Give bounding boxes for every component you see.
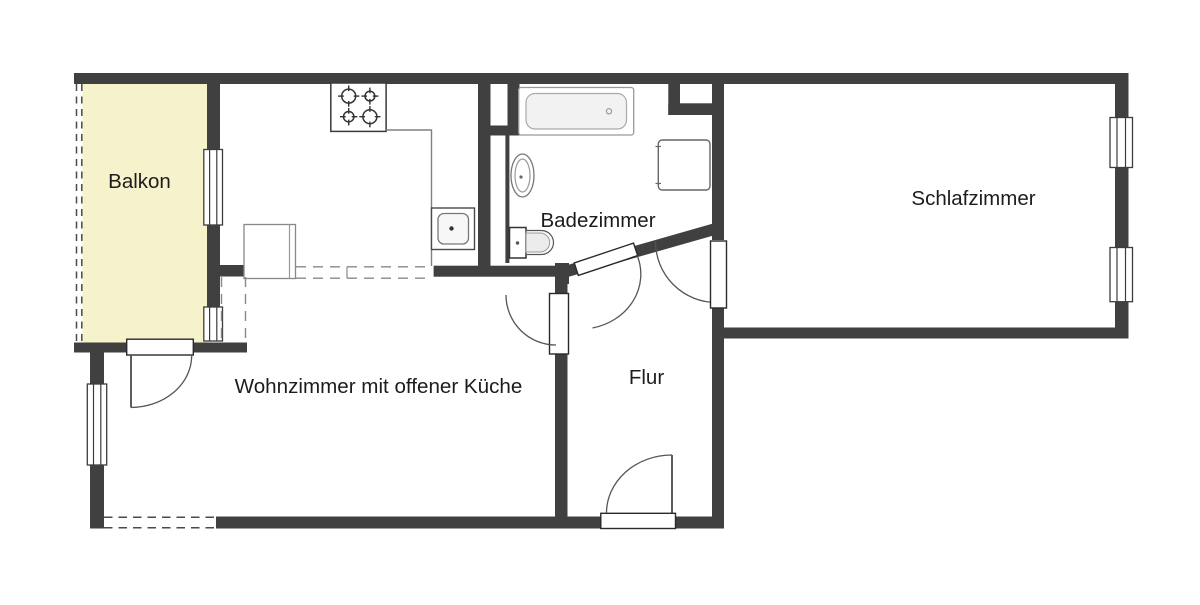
svg-text:Schlafzimmer: Schlafzimmer [911,187,1035,210]
svg-text:Balkon: Balkon [108,170,171,193]
svg-text:Wohnzimmer mit offener Küche: Wohnzimmer mit offener Küche [235,375,523,398]
svg-text:Flur: Flur [629,366,664,389]
svg-text:Badezimmer: Badezimmer [540,209,655,232]
